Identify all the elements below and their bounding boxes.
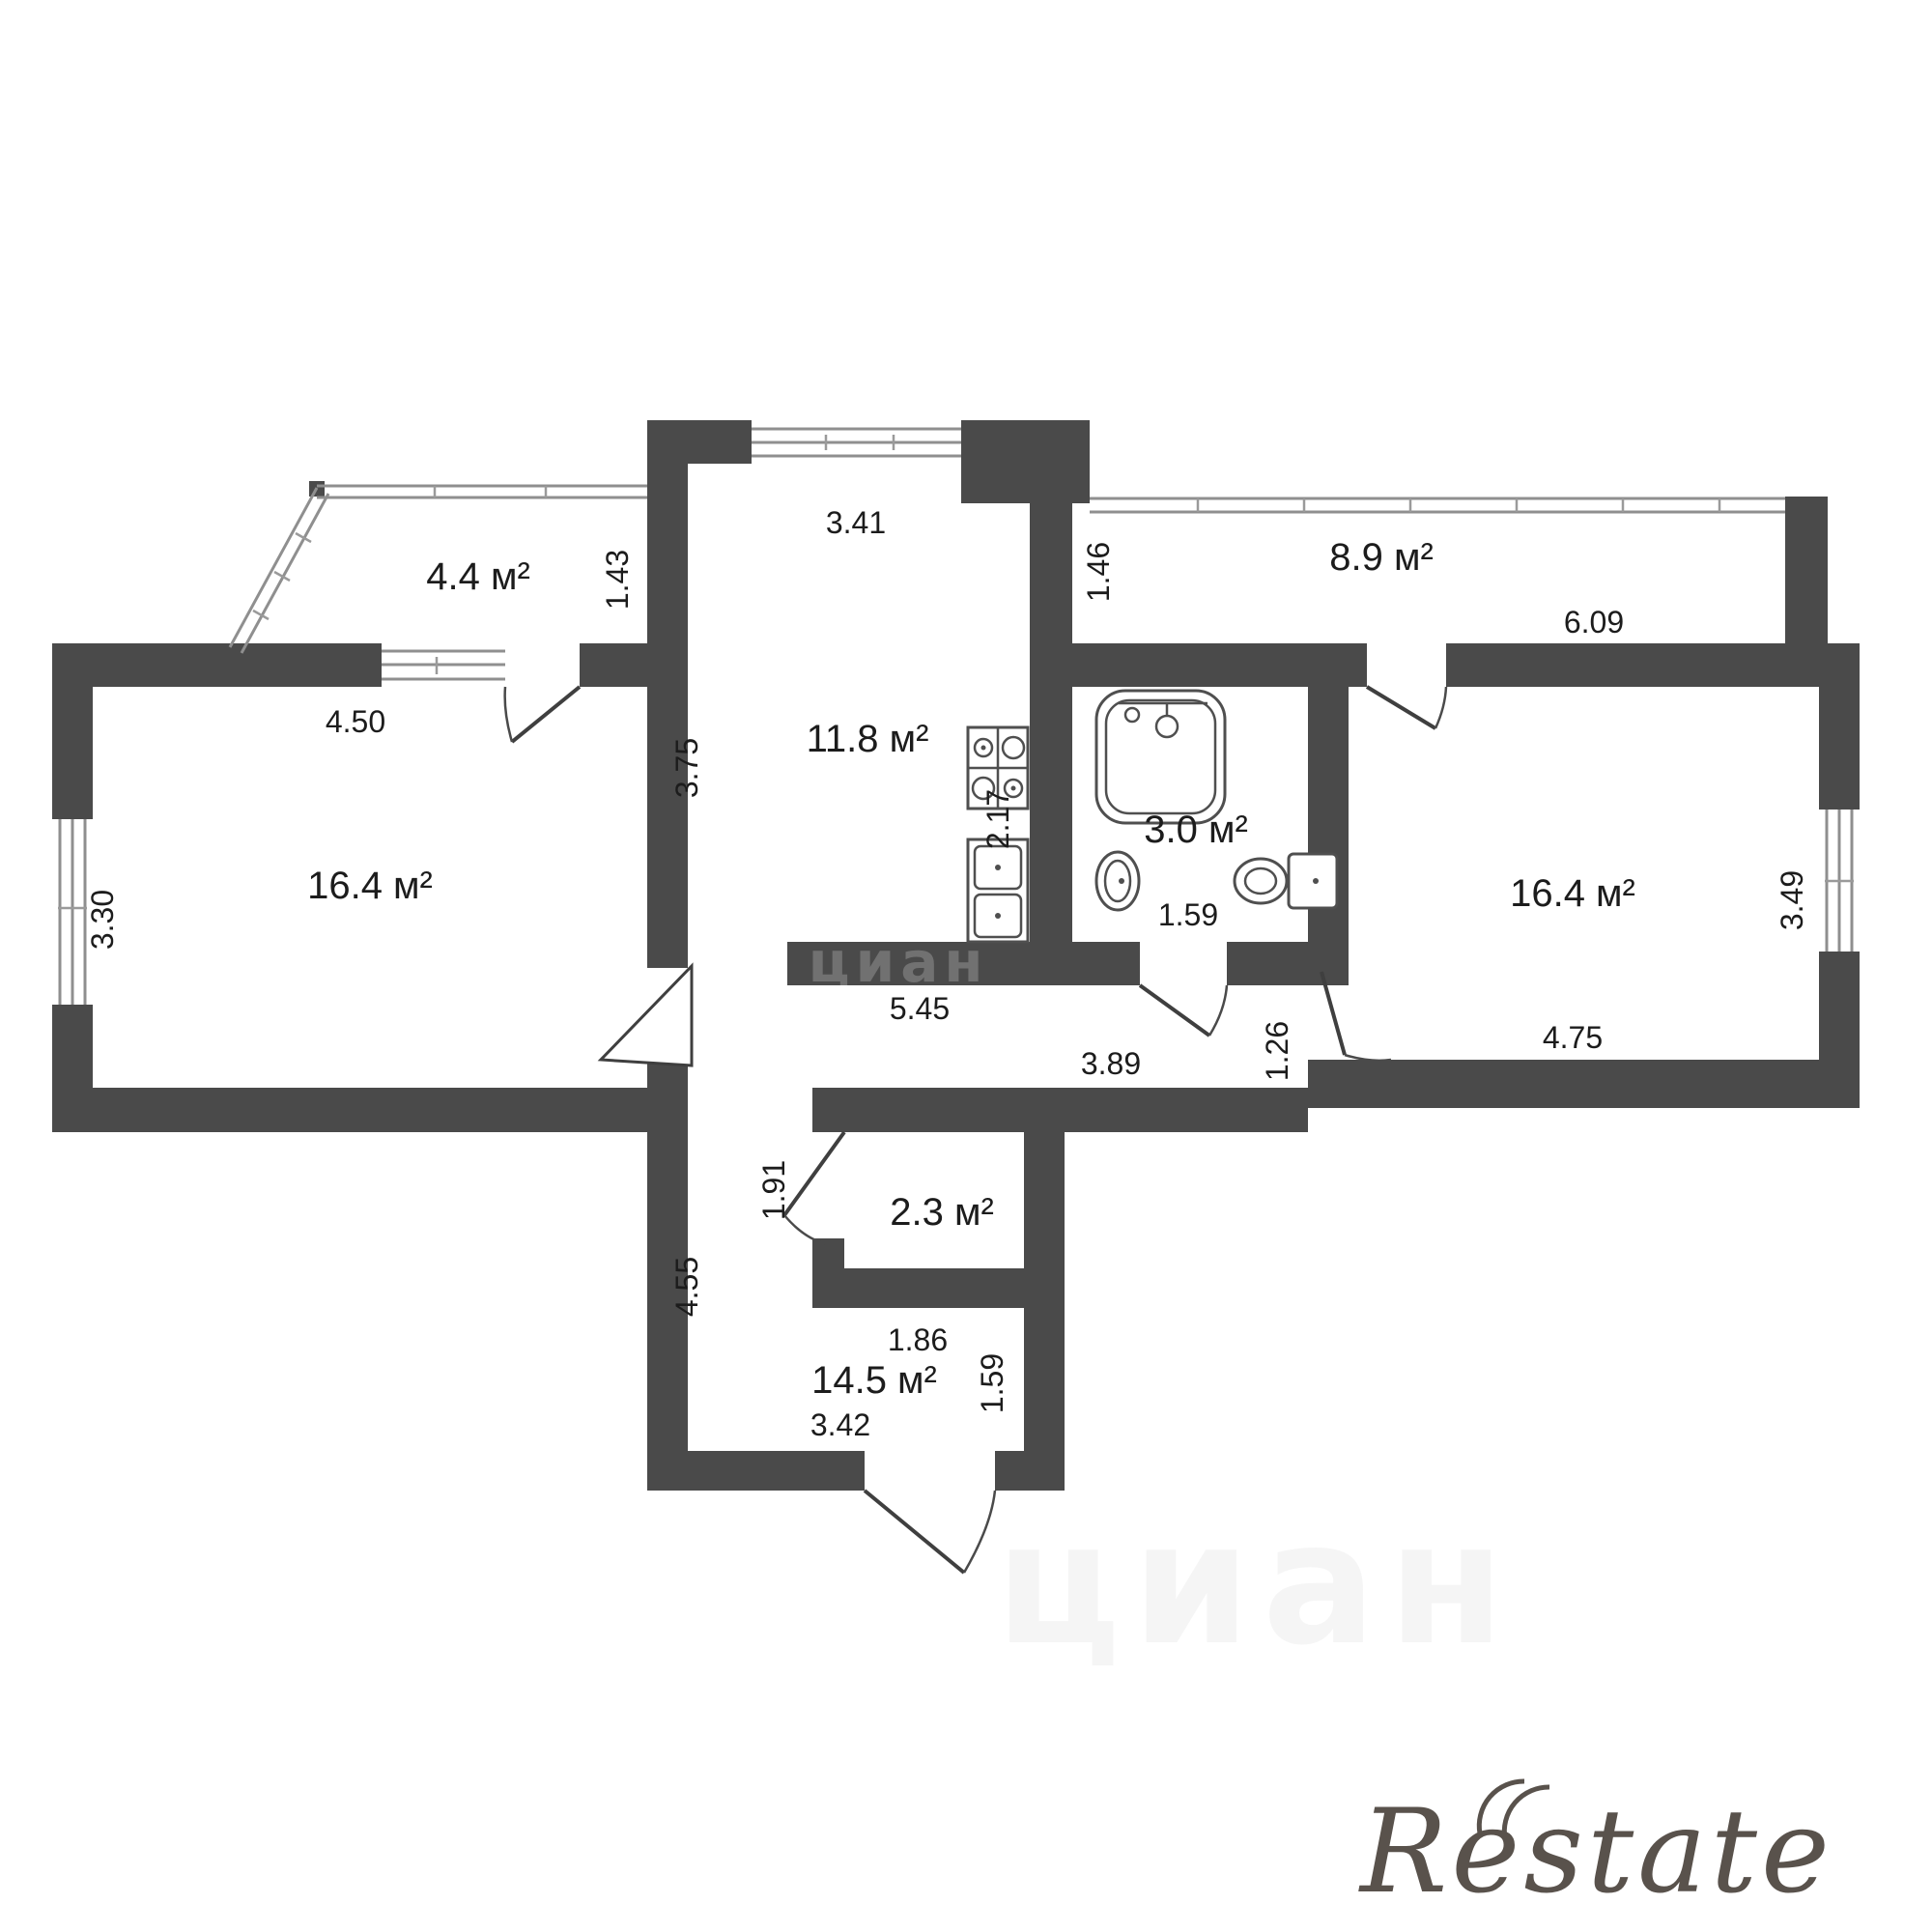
dim-room-right-door: 1.26 xyxy=(1260,1021,1294,1081)
area-room-right: 16.4 м² xyxy=(1510,872,1635,915)
dim-bathroom-width: 1.59 xyxy=(1158,897,1218,932)
area-bathroom: 3.0 м² xyxy=(1144,809,1248,851)
window-right-room xyxy=(1819,810,1860,952)
area-closet: 2.3 м² xyxy=(890,1191,994,1234)
door-bottom-room xyxy=(865,1491,995,1573)
area-balcony-right: 8.9 м² xyxy=(1329,536,1434,579)
door-bathroom xyxy=(1140,985,1227,1036)
bathtub-icon xyxy=(1096,691,1225,823)
watermark-cian: циан xyxy=(995,1487,1516,1683)
area-balcony-left: 4.4 м² xyxy=(426,555,530,598)
windows xyxy=(52,420,1860,1005)
watermark-restate: Restate xyxy=(1358,1781,1833,1919)
dim-kitchen-height: 3.75 xyxy=(669,738,704,798)
dim-room-left-window: 3.30 xyxy=(85,890,120,950)
area-kitchen: 11.8 м² xyxy=(807,718,929,760)
toilet-icon xyxy=(1235,854,1337,908)
window-kitchen-top xyxy=(752,420,961,464)
dim-room-bottom-side: 1.59 xyxy=(975,1353,1009,1413)
dim-hall-height: 4.55 xyxy=(669,1257,704,1317)
door-left-room-balcony xyxy=(505,687,580,742)
dim-hall-width: 3.89 xyxy=(1081,1046,1141,1081)
door-left-room-hall xyxy=(601,966,692,1065)
dim-kitchen-sink: 2.17 xyxy=(980,789,1015,849)
area-room-bottom: 14.5 м² xyxy=(811,1359,937,1402)
dim-balcony-right-width: 6.09 xyxy=(1564,605,1624,639)
dim-closet-width: 1.86 xyxy=(888,1322,948,1357)
dim-closet-door: 1.91 xyxy=(756,1160,791,1220)
dim-room-left-top: 4.50 xyxy=(326,704,385,739)
dim-balcony-right-depth: 1.46 xyxy=(1081,542,1116,602)
watermark-cian-wall: циан xyxy=(809,929,989,995)
dim-room-right-window: 3.49 xyxy=(1775,870,1809,930)
dim-balcony-left-depth: 1.43 xyxy=(600,550,635,610)
dim-kitchen-hall-span: 5.45 xyxy=(890,991,950,1026)
area-room-left: 16.4 м² xyxy=(307,865,433,907)
dim-room-right-width: 4.75 xyxy=(1543,1020,1603,1055)
dim-kitchen-width: 3.41 xyxy=(826,505,886,540)
door-balcony-right xyxy=(1367,687,1446,728)
door-closet xyxy=(784,1132,844,1244)
window-left-room-top xyxy=(382,643,505,687)
washbasin-icon xyxy=(1096,852,1139,910)
floor-plan: 4.4 м² 1.43 3.41 4.50 16.4 м² 3.30 11.8 … xyxy=(0,0,1932,1932)
dim-room-bottom-width: 3.42 xyxy=(810,1407,870,1442)
watermark-restate-text: Restate xyxy=(1358,1785,1833,1919)
kitchen-sink-icon xyxy=(968,839,1028,942)
